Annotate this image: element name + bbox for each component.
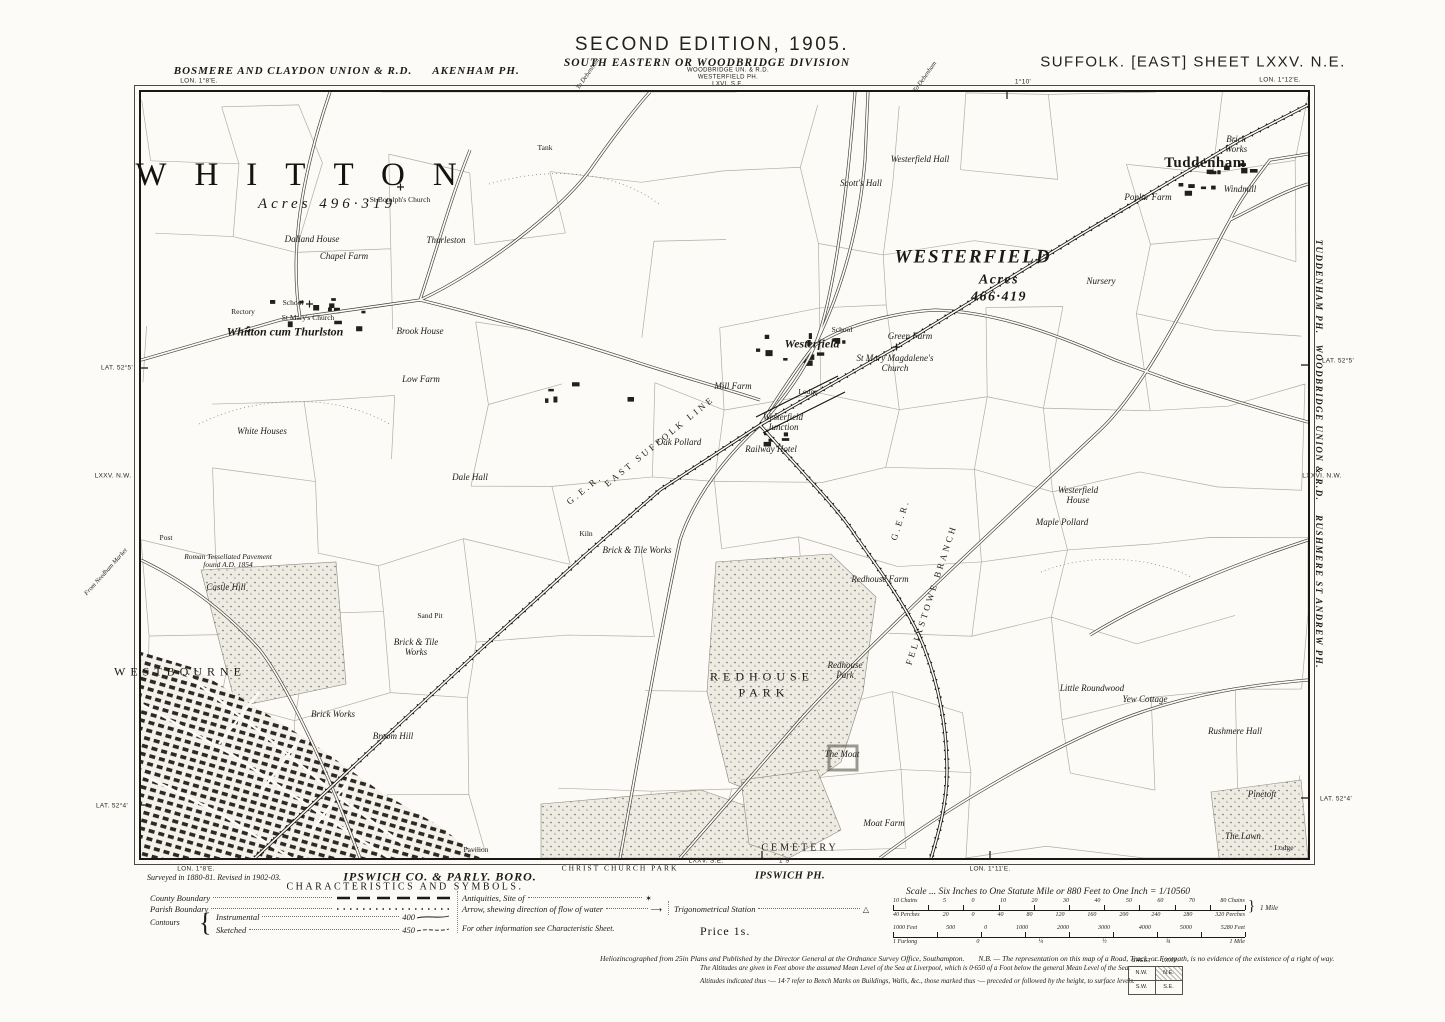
scale-tick-label: 40 Perches [893,912,920,918]
feet-bar [893,932,1245,938]
map-label: Castle Hill [206,583,245,593]
scale-tick-label: ½ [1102,939,1107,945]
scale-tick-label: 1 Furlong [893,939,917,945]
legend-antiquities: Antiquities, Site of ✶ [462,893,652,903]
legend-divider [668,901,669,915]
map-label: Brick & Tile Works [603,546,672,556]
map-label: Redhouse Farm [851,575,908,585]
lon-top-right: LON. 1°12'E. [1259,77,1300,84]
map-label-layer: WHITTONAcres 496·319WESTERFIELDAcres466·… [141,92,1308,858]
scale-tick-label: 0 [976,939,979,945]
map-label: Post [160,534,173,542]
map-label: Rushmere Hall [1208,727,1262,737]
scale-tick-label: 5280 Feet [1221,925,1245,931]
scale-tick-label: 1 Mile [1229,939,1245,945]
scale-tick-label: 80 [1026,912,1032,918]
scale-tick [981,932,982,937]
map-label: Mill Farm [714,382,751,392]
ipswich-parish-label: IPSWICH PH. [755,871,825,882]
scale-tick-label: 0 [984,925,987,931]
map-label: Kiln [579,530,592,538]
legend-arrow-label: Arrow, shewing direction of flow of wate… [462,904,603,914]
legend-county-boundary-label: County Boundary [150,893,210,903]
legend-contour-value-400: 400 [402,912,415,922]
lon-top-left: LON. 1°8'E. [180,78,218,85]
sheet-index-grid: N.W. N.E. S.W. S.E. [1128,966,1182,994]
map-label: The Moat [825,750,860,760]
lat-left-top: LAT. 52°5' [101,365,133,372]
trig-station-symbol: △ [863,905,869,914]
map-label: Railway Hotel [745,445,797,455]
map-canvas-area: WHITTONAcres 496·319WESTERFIELDAcres466·… [139,90,1310,860]
map-label: 466·419 [971,289,1027,304]
map-label: Little Roundwood [1060,684,1124,694]
legend-antiquities-label: Antiquities, Site of [462,893,525,903]
map-label: Rectory [231,308,255,316]
scale-tick [928,905,929,910]
perches-labels: 40 Perches2004080120160200240280320 Perc… [893,912,1245,918]
map-label: G.E.R. [565,473,604,508]
scale-tick-label: 240 [1151,912,1160,918]
map-label: CEMETERY [761,843,838,854]
map-label: Pinetoft [1248,790,1277,800]
map-label: Lodge [1274,844,1293,852]
legend-sketched-label: Sketched [216,925,246,935]
map-label: Brick Works [1225,135,1247,155]
scale-tick [1157,932,1158,937]
map-label: Scott's Hall [840,179,882,189]
lat-right-bottom: LAT. 52°4' [1320,796,1352,803]
lat-left-bottom: LAT. 52°4' [96,803,128,810]
imprint-altitudes: The Altitudes are given in Feet above th… [700,964,1130,972]
legend-title: CHARACTERISTICS AND SYMBOLS. [287,882,524,893]
map-label: Tuddenham [1164,155,1246,172]
map-label: Tank [538,144,553,152]
scale-tick-label: 30 [1063,898,1069,904]
imprint-benchmarks: Altitudes indicated thus ·— 14·7 refer t… [700,977,1135,985]
parish-label-rushmere: RUSHMERE ST ANDREW PH. [1314,515,1324,669]
legend-leader [758,908,859,909]
admin-stack-line: WESTERFIELD PH. [698,75,758,82]
legend-leader [249,929,399,930]
scale-tick-label: ¼ [1038,939,1043,945]
legend-arrow: Arrow, shewing direction of flow of wate… [462,904,662,914]
scale-caption: Scale ... Six Inches to One Statute Mile… [906,887,1190,897]
scale-tick [1113,932,1114,937]
scale-tick [1245,932,1246,937]
legend-trig-label: Trigonometrical Station [674,904,755,914]
scale-tick [1245,905,1246,910]
sheet-index-nw: N.W. [1128,966,1156,981]
scale-tick-label: 280 [1183,912,1192,918]
map-label: Redhouse Park [828,661,863,681]
scale-tick [1104,905,1105,910]
scale-tick-label: 70 [1189,898,1195,904]
scale-tick [937,932,938,937]
scale-tick [893,932,894,937]
map-label: Brick & Tile Works [394,638,439,658]
sheet-index-sw: S.W. [1128,980,1156,995]
christ-church-park-label: CHRIST CHURCH PARK [562,864,679,873]
scale-bar-feet: 1000 Feet5000100020003000400050005280 Fe… [893,925,1245,945]
scale-tick-label: 1000 Feet [893,925,917,931]
scale-tick [963,905,964,910]
map-label: WHITTON [135,157,484,193]
os-map-sheet: SECOND EDITION, 1905. SOUTH EASTERN OR W… [0,0,1445,1022]
map-label: Whitton cum Thurlston [227,325,344,338]
legend-footnote: For other information see Characteristic… [462,924,614,933]
map-label: Westerfield Hall [891,155,949,165]
legend-instrumental-label: Instrumental [216,912,259,922]
map-label: St Mary Magdalene's Church [857,354,934,374]
scale-brace: } [1248,898,1255,915]
scale-tick-label: 60 [1157,898,1163,904]
map-label: Acres [979,272,1019,287]
map-label: REDHOUSE [710,670,814,683]
scale-tick-label: 20 [1031,898,1037,904]
map-label: Green Farm [888,332,932,342]
map-label: School [832,326,853,334]
scale-tick [1069,932,1070,937]
parish-label-akenham: AKENHAM PH. [432,65,519,77]
imprint-publisher: Heliozincographed from 25in Plans and Pu… [600,954,964,963]
contour-sketched-symbol [415,927,451,933]
legend-leader [211,908,332,909]
union-label-left: BOSMERE AND CLAYDON UNION & R.D. [174,65,413,77]
scale-tick-label: 500 [946,925,955,931]
map-label: Thurleston [426,236,465,246]
legend-trig-station: Trigonometrical Station △ [674,904,869,914]
contour-instrumental-symbol [415,914,451,920]
scale-one-mile: 1 Mile [1260,904,1278,912]
lon-bottom-mid: 1°9' [779,858,791,865]
sheet-index-se: S.E. [1155,980,1183,995]
scale-tick-label: ¾ [1166,939,1171,945]
map-label: Poplar Farm [1124,193,1171,203]
scale-tick [1069,905,1070,910]
scale-tick-label: 5 [943,898,946,904]
scale-tick-label: 160 [1087,912,1096,918]
map-label: St Mary's Church [282,314,335,322]
map-frame: WHITTONAcres 496·319WESTERFIELDAcres466·… [134,85,1315,865]
scale-tick-label: 10 Chains [893,898,918,904]
map-label: G.E.R. [890,498,913,542]
map-label: Brick Works [311,710,355,720]
map-label: Pavilion [463,846,488,854]
survey-note: Surveyed in 1880-81. Revised in 1902-03. [147,873,281,882]
price-label: Price 1s. [700,924,750,939]
chains-labels: 10 Chains501020304050607080 Chains [893,898,1245,904]
lon-bottom-left: LON. 1°8'E. [177,866,215,873]
scale-tick [999,905,1000,910]
map-label: Westerfield [784,337,839,350]
legend-leader [528,897,643,898]
map-label: Maple Pollard [1036,518,1088,528]
furlong-labels: 1 Furlong0¼½¾1 Mile [893,939,1245,945]
scale-tick-label: 20 [943,912,949,918]
scale-tick-label: 0 [971,898,974,904]
scale-tick-label: 50 [1126,898,1132,904]
map-label: School [283,299,304,307]
map-label: WESTBOURNE [114,665,246,678]
flow-arrow-symbol: ⟶ [651,905,662,914]
scale-tick-label: 5000 [1180,925,1192,931]
map-label: Dale Hall [452,473,488,483]
sheet-title: SUFFOLK. [EAST] SHEET LXXV. N.E. [1040,54,1346,71]
map-label: Westerfield House [1058,486,1098,506]
sheet-index-ne: N.E. [1155,966,1183,981]
legend-leader [606,908,647,909]
scale-bar-chains: 10 Chains501020304050607080 Chains 40 Pe… [893,898,1245,918]
map-label: Lodge [798,388,817,396]
scale-tick-label: 320 Perches [1215,912,1245,918]
scale-tick [1210,905,1211,910]
sheet-index: SHEET — LXXV. N.W. N.E. S.W. S.E. [1128,958,1182,994]
map-label: Windmill [1224,185,1257,195]
map-label: Dalland House [285,235,340,245]
legend-contours-brace: { [199,908,211,938]
admin-stack-line: WOODBRIDGE UN. & R.D. [687,68,769,75]
scale-tick [1139,905,1140,910]
map-label: Chapel Farm [320,252,368,262]
scale-tick-label: 4000 [1139,925,1151,931]
map-label: FELIXSTOWE BRANCH [905,524,960,667]
map-label: Sand Pit [417,612,442,620]
feet-labels: 1000 Feet5000100020003000400050005280 Fe… [893,925,1245,931]
scale-tick-label: 200 [1119,912,1128,918]
map-label: Broom Hill [373,732,413,742]
map-label: Westerfield Junction [763,413,803,433]
edition-title: SECOND EDITION, 1905. [575,34,849,56]
scale-tick-label: 2000 [1057,925,1069,931]
lon-bottom-right: LON. 1°11'E. [970,866,1011,873]
scale-tick-label: 40 [998,912,1004,918]
map-label: Brook House [397,327,444,337]
scale-tick [1175,905,1176,910]
map-label: The Lawn [1225,832,1261,842]
map-label: Yew Cottage [1123,695,1168,705]
scale-tick [1025,932,1026,937]
antiquities-symbol: ✶ [645,894,652,903]
map-label: WESTERFIELD [894,248,1051,269]
map-label: Roman Tessellated Pavement found A.D. 18… [184,553,272,570]
chains-bar [893,905,1245,911]
legend-contour-value-450: 450 [402,925,415,935]
map-label: St Botolph's Church [370,196,431,204]
legend-leader [262,916,399,917]
map-label: White Houses [237,427,287,437]
scale-tick-label: 10 [1000,898,1006,904]
scale-tick-label: 0 [972,912,975,918]
adjacent-sheet-west: LXXV. N.W. [95,473,132,480]
map-label: Moat Farm [863,819,904,829]
scale-tick [893,905,894,910]
legend-contours-label: Contours [150,918,180,927]
scale-tick [1201,932,1202,937]
legend-contour-instrumental: Instrumental 400 [216,912,451,922]
lat-right-top: LAT. 52°5' [1322,358,1354,365]
route-from-needham-market: From Needham Market [83,547,129,597]
county-boundary-symbol [335,894,455,902]
scale-tick-label: 40 [1094,898,1100,904]
parish-label-tuddenham: TUDDENHAM PH. [1314,239,1324,334]
map-label: Nursery [1086,277,1115,287]
legend-divider [457,891,458,933]
adjacent-sheet-south: LXXV. S.E. [689,858,724,865]
adjacent-sheet-east: LXXVI. N.W. [1302,473,1341,480]
scale-tick-label: 1000 [1016,925,1028,931]
scale-tick-label: 80 Chains [1220,898,1245,904]
legend-contour-sketched: Sketched 450 [216,925,451,935]
legend-county-boundary: County Boundary [150,893,455,903]
sheet-index-label: SHEET — LXXV. [1128,958,1182,964]
scale-tick [1034,905,1035,910]
scale-tick-label: 120 [1055,912,1064,918]
scale-tick-label: 3000 [1098,925,1110,931]
map-label: Low Farm [402,375,440,385]
map-label: PARK [739,686,790,699]
legend-leader [213,897,332,898]
